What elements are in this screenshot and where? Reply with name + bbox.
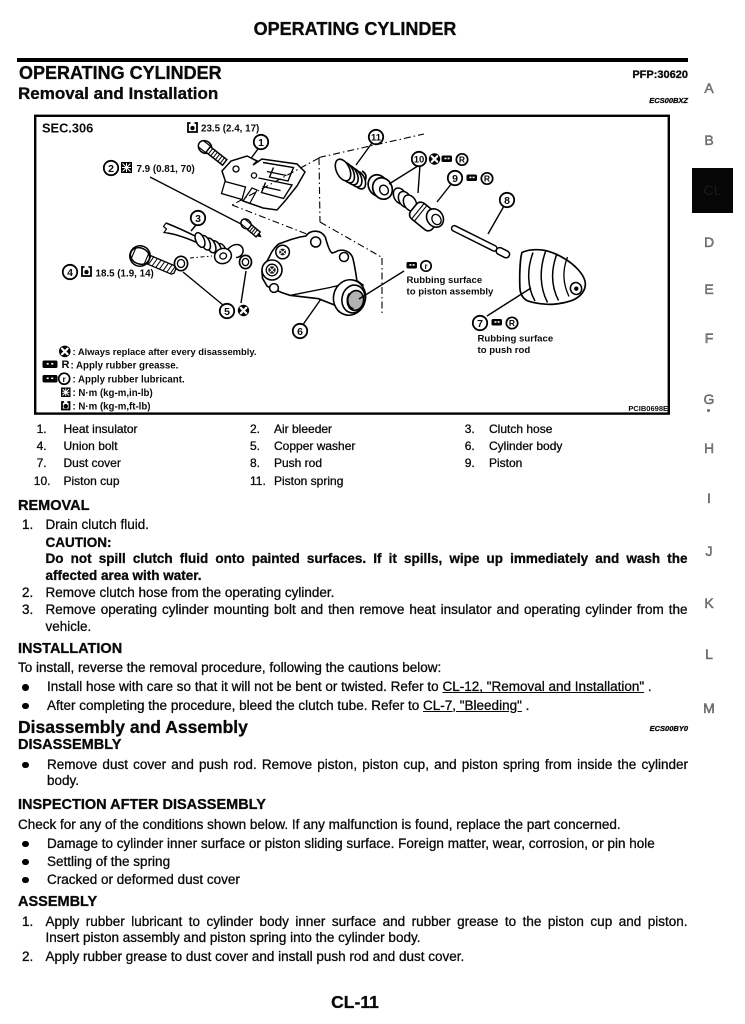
svg-text:R: R	[459, 155, 465, 165]
svg-text:: N·m (kg-m,in-lb): : N·m (kg-m,in-lb)	[73, 388, 153, 399]
svg-text:: Apply rubber lubricant.: : Apply rubber lubricant.	[73, 375, 185, 386]
svg-text:6: 6	[297, 326, 303, 338]
svg-text:to push rod: to push rod	[478, 345, 531, 356]
svg-text:R: R	[484, 174, 490, 184]
svg-text:11: 11	[371, 132, 382, 143]
svg-text:23.5 (2.4, 17): 23.5 (2.4, 17)	[201, 124, 259, 135]
svg-text:3: 3	[195, 213, 201, 225]
svg-text:PCIB0698E: PCIB0698E	[628, 404, 668, 413]
svg-text:18.5 (1.9, 14): 18.5 (1.9, 14)	[96, 269, 154, 280]
svg-text:Rubbing surface: Rubbing surface	[407, 275, 483, 286]
svg-text:: N·m (kg-m,ft-lb): : N·m (kg-m,ft-lb)	[73, 402, 151, 413]
svg-text:: Always replace after every d: : Always replace after every disassembly…	[73, 346, 257, 357]
svg-text:r: r	[424, 262, 427, 271]
svg-text:4: 4	[67, 267, 73, 279]
svg-text:to piston assembly: to piston assembly	[407, 287, 495, 298]
svg-text:7: 7	[477, 318, 483, 330]
svg-text:5: 5	[224, 306, 230, 318]
svg-text:9: 9	[452, 173, 458, 185]
svg-text:R: R	[509, 318, 515, 328]
svg-text:10: 10	[414, 154, 425, 165]
svg-text:R: R	[62, 359, 70, 371]
svg-text:8: 8	[504, 195, 510, 207]
svg-text:1: 1	[258, 137, 264, 149]
svg-text:: Apply rubber greasse.: : Apply rubber greasse.	[71, 361, 179, 372]
svg-text:7.9 (0.81, 70): 7.9 (0.81, 70)	[137, 164, 195, 175]
svg-text:2: 2	[108, 163, 114, 175]
svg-text:SEC.306: SEC.306	[42, 121, 93, 136]
svg-text:Rubbing surface: Rubbing surface	[478, 334, 554, 345]
